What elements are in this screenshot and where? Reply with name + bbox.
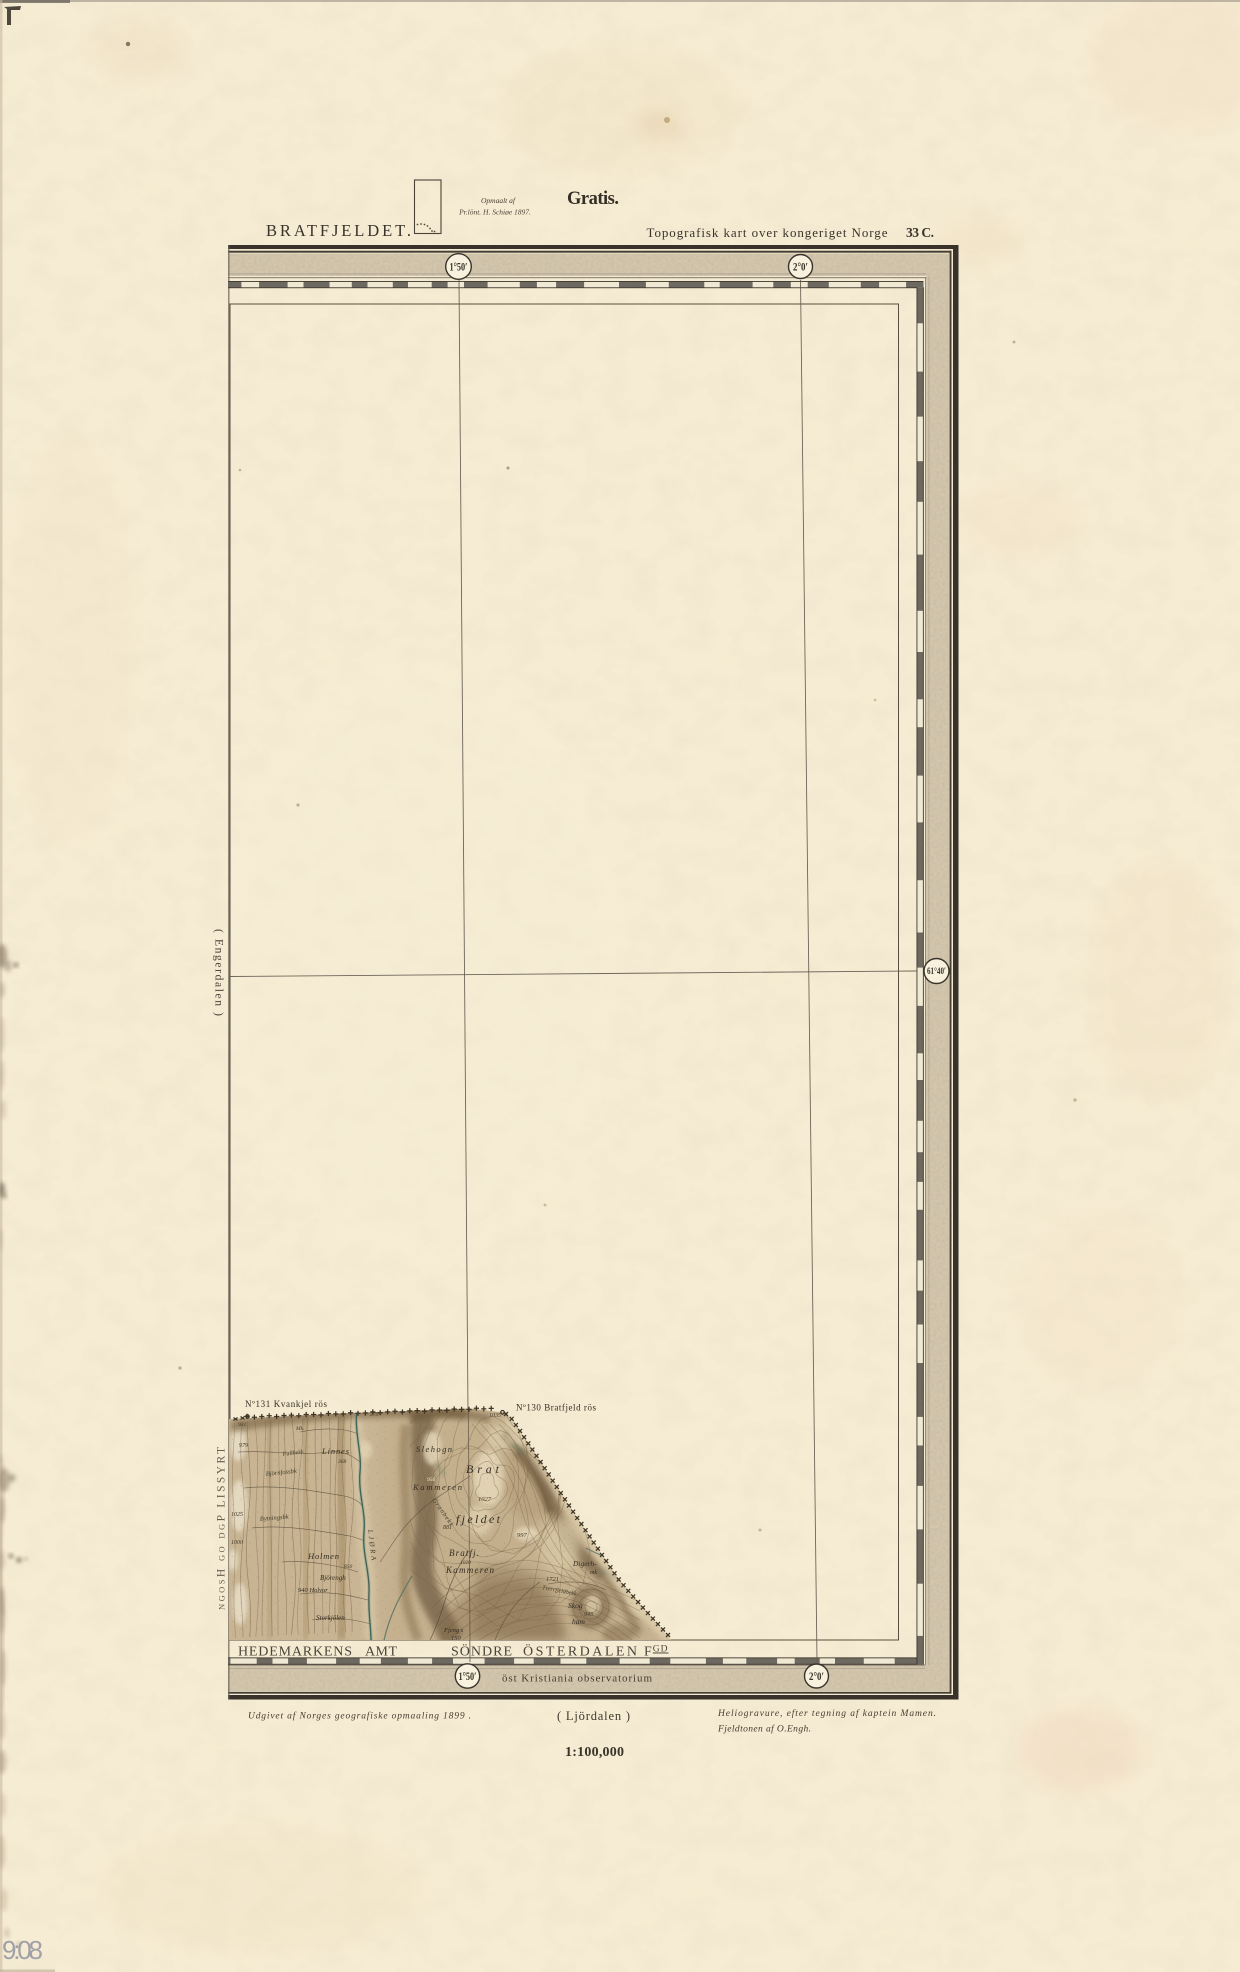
svg-text:Mk.: Mk. — [295, 1426, 304, 1432]
svg-text:1°50′: 1°50′ — [450, 261, 468, 273]
svg-text:HEDEMARKENS: HEDEMARKENS — [238, 1645, 352, 1660]
svg-text:Bratfj.: Bratfj. — [449, 1548, 479, 1558]
svg-text:Kammeren: Kammeren — [445, 1565, 495, 1575]
svg-text:2°0′: 2°0′ — [793, 261, 808, 273]
svg-text:2°0′: 2°0′ — [809, 1671, 824, 1683]
svg-text:Opmaalt af: Opmaalt af — [481, 196, 516, 205]
svg-text:379: 379 — [369, 1412, 379, 1418]
svg-text:( Ljördalen ): ( Ljördalen ) — [557, 1709, 630, 1723]
svg-text:997: 997 — [517, 1532, 528, 1539]
svg-text:850: 850 — [344, 1564, 353, 1570]
svg-text:1035: 1035 — [489, 1413, 501, 1419]
svg-text:1:100,000: 1:100,000 — [565, 1745, 624, 1760]
svg-text:33 C.: 33 C. — [906, 225, 934, 240]
svg-text:Gratis.: Gratis. — [567, 189, 619, 209]
svg-text:( Engerdalen ): ( Engerdalen ) — [213, 929, 225, 1016]
svg-text:Linnes: Linnes — [321, 1446, 350, 1456]
svg-text:943: 943 — [584, 1611, 593, 1618]
svg-text:1025: 1025 — [231, 1512, 243, 1518]
svg-text:SÖNDRE: SÖNDRE — [451, 1643, 512, 1660]
svg-text:Fjeldtonen af O.Engh.: Fjeldtonen af O.Engh. — [717, 1724, 811, 1735]
svg-text:Nº130 Bratfjeld rös: Nº130 Bratfjeld rös — [516, 1403, 596, 1413]
svg-text:Skog: Skog — [568, 1601, 583, 1610]
svg-text:1721: 1721 — [546, 1576, 559, 1583]
svg-text:61°40′: 61°40′ — [927, 966, 946, 977]
svg-text:mk: mk — [590, 1570, 597, 1576]
svg-text:1°50′: 1°50′ — [459, 1671, 477, 1683]
svg-text:368: 368 — [337, 1459, 347, 1465]
svg-text:Holmen: Holmen — [307, 1551, 339, 1561]
svg-text:979: 979 — [239, 1443, 248, 1449]
svg-text:ÖSTERDALEN: ÖSTERDALEN — [523, 1643, 637, 1660]
svg-text:AMT: AMT — [365, 1645, 397, 1660]
svg-text:1027: 1027 — [478, 1496, 492, 1503]
svg-text:Björengh: Björengh — [320, 1574, 346, 1582]
svg-text:fjeldet: fjeldet — [456, 1512, 501, 1526]
svg-text:9:08: 9:08 — [2, 1935, 43, 1965]
svg-text:Topografisk kart over kongerig: Topografisk kart over kongeriget Norge — [647, 225, 888, 240]
svg-text:Kammeren: Kammeren — [412, 1482, 462, 1492]
svg-text:Heliogravure, efter tegning af: Heliogravure, efter tegning af kaptein M… — [717, 1708, 936, 1719]
svg-text:1000: 1000 — [231, 1540, 243, 1546]
svg-text:Digerh-: Digerh- — [572, 1559, 597, 1568]
svg-text:Nº131 Kvankjel rös: Nº131 Kvankjel rös — [245, 1399, 327, 1409]
svg-text:150: 150 — [451, 1635, 462, 1642]
svg-text:Storkjölen: Storkjölen — [316, 1614, 345, 1622]
svg-text:940 Holvor: 940 Holvor — [298, 1587, 328, 1594]
svg-text:öst Kristiania observatorium: öst Kristiania observatorium — [502, 1673, 652, 1685]
svg-text:ham: ham — [572, 1617, 586, 1626]
svg-text:Udgivet af Norges geografiske: Udgivet af Norges geografiske opmaaling … — [248, 1711, 471, 1722]
svg-text:Pr.lönt. H. Schiøe 1897.: Pr.lönt. H. Schiøe 1897. — [458, 208, 531, 217]
svg-text:Fjeng s: Fjeng s — [443, 1627, 464, 1634]
svg-text:931: 931 — [238, 1422, 247, 1428]
